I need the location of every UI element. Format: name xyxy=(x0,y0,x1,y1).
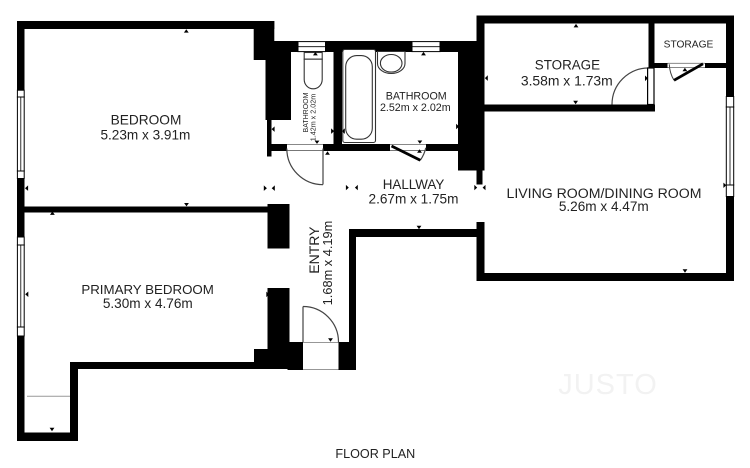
svg-text:HALLWAY: HALLWAY xyxy=(383,177,445,192)
svg-text:2.67m x 1.75m: 2.67m x 1.75m xyxy=(369,191,459,206)
svg-text:PRIMARY BEDROOM: PRIMARY BEDROOM xyxy=(81,282,214,297)
svg-text:2.52m x 2.02m: 2.52m x 2.02m xyxy=(380,102,451,114)
svg-text:1.68m x 4.19m: 1.68m x 4.19m xyxy=(320,221,335,306)
svg-text:STORAGE: STORAGE xyxy=(664,40,714,51)
svg-text:STORAGE: STORAGE xyxy=(535,57,600,72)
svg-text:5.26m x 4.47m: 5.26m x 4.47m xyxy=(559,199,649,214)
svg-text:FLOOR PLAN: FLOOR PLAN xyxy=(335,447,415,461)
svg-text:5.23m x 3.91m: 5.23m x 3.91m xyxy=(100,127,190,142)
svg-text:BATHROOM: BATHROOM xyxy=(386,91,447,103)
svg-text:BEDROOM: BEDROOM xyxy=(111,113,182,128)
svg-text:5.30m x 4.76m: 5.30m x 4.76m xyxy=(103,296,193,311)
svg-text:3.58m x 1.73m: 3.58m x 1.73m xyxy=(521,73,613,89)
svg-text:1.42m x 2.02m: 1.42m x 2.02m xyxy=(309,94,318,142)
svg-text:JUSTO: JUSTO xyxy=(558,369,658,401)
